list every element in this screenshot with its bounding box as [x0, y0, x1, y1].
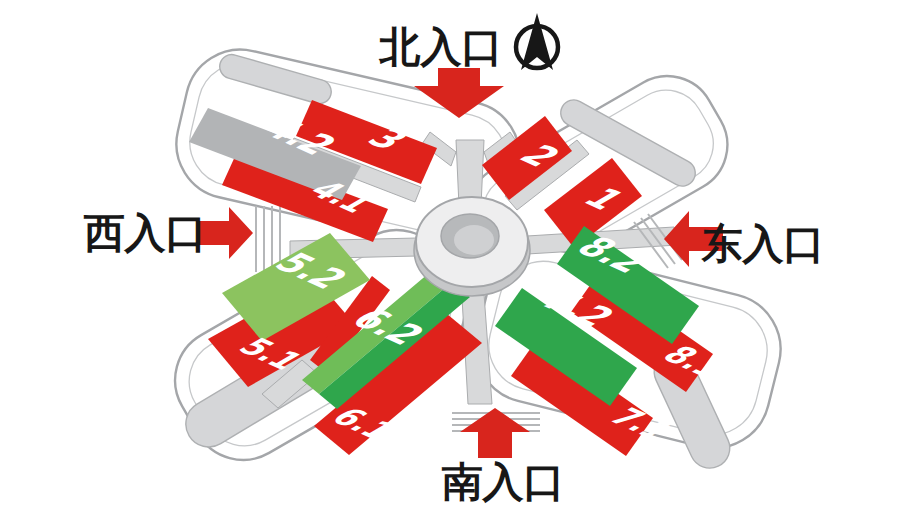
- west-entrance-label: 西入口: [84, 209, 207, 257]
- central-ring: [414, 197, 530, 296]
- west-entrance-steps: [256, 206, 280, 272]
- south-entrance-label: 南入口: [442, 458, 565, 506]
- east-entrance-label: 东入口: [701, 220, 825, 268]
- venue-map: 3 4.2 4.1 2 1 5.2 5.1 6.2 6.1 8.2 8.1 7.…: [0, 0, 900, 507]
- compass-north-icon: [516, 13, 558, 70]
- south-entrance-arrow: [460, 408, 530, 458]
- venue-map-svg: 3 4.2 4.1 2 1 5.2 5.1 6.2 6.1 8.2 8.1 7.…: [0, 0, 900, 507]
- north-entrance-label: 北入口: [379, 23, 503, 71]
